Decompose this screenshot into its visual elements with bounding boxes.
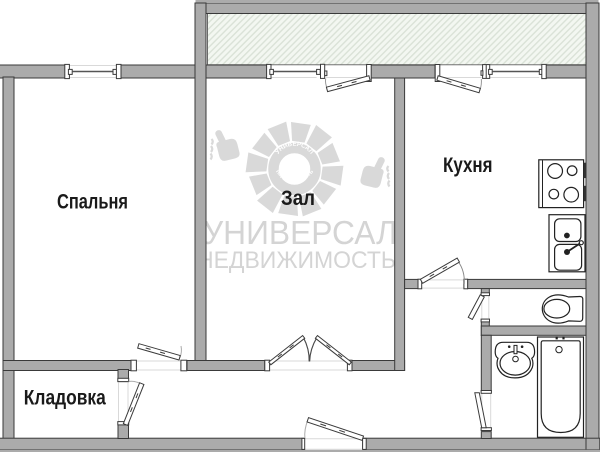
svg-text:Спальня: Спальня	[57, 191, 128, 214]
svg-text:НЕДВИЖИМОСТЬ: НЕДВИЖИМОСТЬ	[197, 247, 396, 274]
svg-text:Кладовка: Кладовка	[24, 387, 106, 410]
svg-text:Зал: Зал	[281, 187, 315, 210]
svg-text:УНИВЕРСАЛ: УНИВЕРСАЛ	[203, 214, 397, 251]
svg-text:Кухня: Кухня	[443, 154, 493, 177]
